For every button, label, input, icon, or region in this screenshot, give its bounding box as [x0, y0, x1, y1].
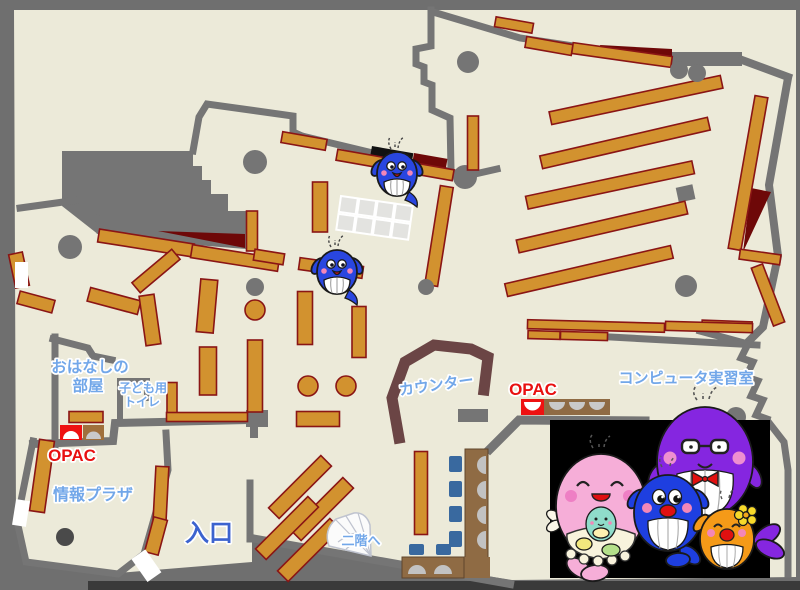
chair	[449, 531, 462, 547]
counter-desk	[458, 409, 488, 422]
chair	[449, 481, 462, 497]
bookshelf	[69, 412, 103, 423]
bookshelf	[415, 452, 428, 535]
floor-map-svg: おはなしの 部屋 子ども用 トイレ OPAC 情報プラザ 入口 二階へ カウンタ…	[0, 0, 800, 590]
bookshelf	[297, 412, 340, 427]
chair	[449, 506, 462, 522]
label-computer-room: コンピュータ実習室	[618, 369, 753, 387]
label-stairs: 二階へ	[341, 533, 380, 548]
library-floor-map: おはなしの 部屋 子ども用 トイレ OPAC 情報プラザ 入口 二階へ カウンタ…	[0, 0, 800, 590]
bookshelf	[167, 383, 177, 416]
label-kids-toilet: 子ども用	[119, 381, 167, 395]
label-info-plaza: 情報プラザ	[53, 485, 133, 504]
bookshelf	[200, 347, 217, 395]
chair	[436, 544, 451, 555]
bookshelf	[665, 321, 752, 332]
bookshelf	[248, 340, 263, 412]
bookshelf	[298, 292, 313, 345]
bookshelf	[560, 331, 607, 340]
desk	[462, 557, 490, 578]
wall-stub	[250, 427, 258, 438]
label-opac-left: OPAC	[48, 446, 96, 465]
label-kids-toilet2: トイレ	[124, 395, 160, 409]
opac-station-right	[521, 399, 610, 415]
label-storytelling-room: おはなしの	[51, 358, 129, 376]
bookshelf	[247, 211, 258, 251]
baby-whale-icon	[586, 507, 616, 541]
bookshelf	[352, 307, 366, 358]
chair	[449, 456, 462, 472]
label-entrance: 入口	[185, 520, 233, 547]
chair	[409, 544, 424, 555]
bookshelf	[153, 466, 169, 520]
bottom-shadow-strip	[88, 581, 800, 590]
label-opac-right: OPAC	[509, 380, 557, 399]
label-storytelling-room2: 部屋	[72, 376, 103, 395]
bookshelf	[468, 116, 479, 170]
bookshelf	[167, 413, 248, 422]
bookshelf	[528, 331, 560, 340]
bookshelf	[313, 182, 328, 232]
opac-station-left	[60, 425, 104, 440]
bookshelf	[196, 279, 218, 333]
